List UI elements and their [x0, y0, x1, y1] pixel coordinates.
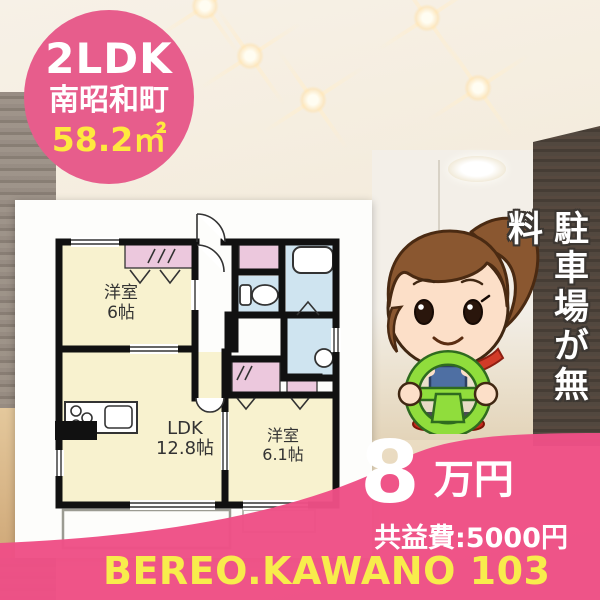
room1-name: 洋室: [104, 283, 138, 303]
listing-flyer: 2LDK 南昭和町 58.2㎡: [0, 0, 600, 600]
unit-area-label: 58.2㎡: [52, 123, 166, 156]
rent-amount: 8: [360, 434, 420, 513]
property-name: BEREO.KAWANO 103: [103, 549, 550, 593]
rent-unit: 万円: [434, 447, 514, 505]
unit-town-label: 南昭和町: [49, 86, 169, 116]
ceiling-light: [448, 156, 506, 182]
bathtub-icon: [293, 247, 333, 273]
unit-layout-label: 2LDK: [45, 38, 172, 80]
rent-price-block: 8 万円 共益費:5000円: [360, 434, 592, 555]
parking-free-banner: 駐車場が無料: [545, 210, 591, 440]
room1-size: 6帖: [107, 303, 135, 323]
washbasin-icon: [315, 349, 333, 367]
unit-info-badge: 2LDK 南昭和町 58.2㎡: [24, 10, 194, 184]
toilet-icon: [240, 285, 278, 305]
